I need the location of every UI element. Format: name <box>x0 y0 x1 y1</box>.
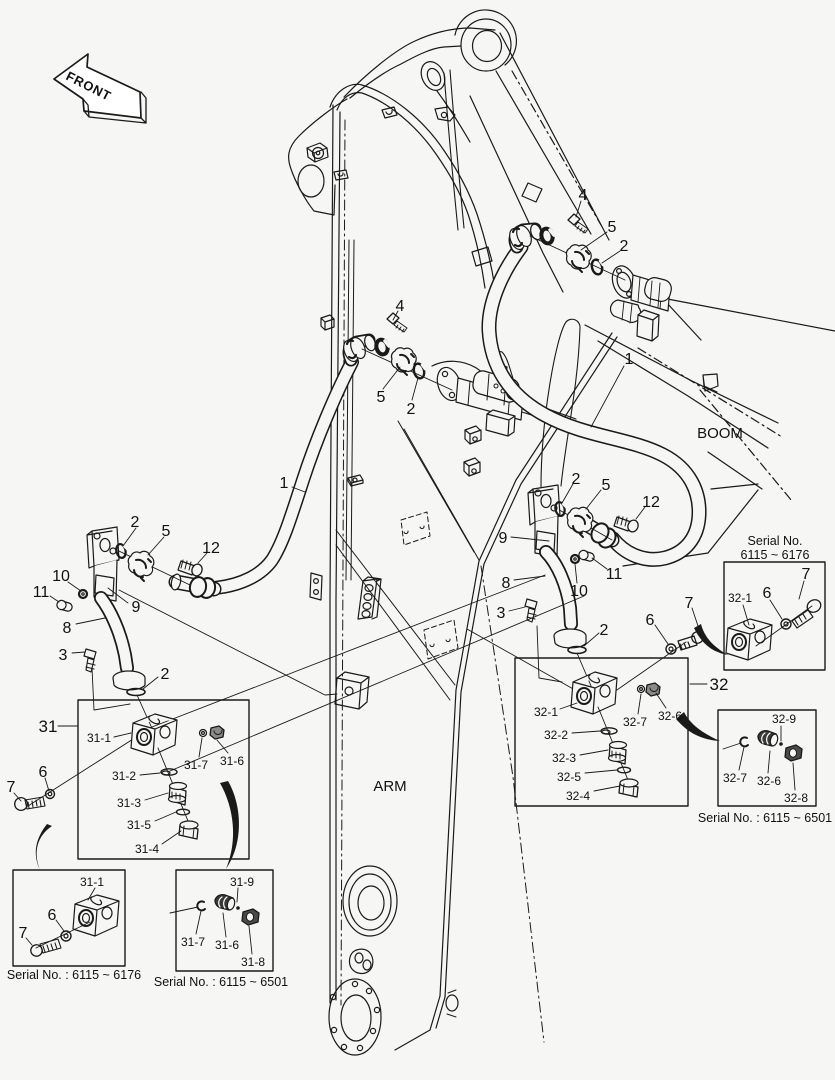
svg-text:31: 31 <box>39 717 58 736</box>
svg-text:32-3: 32-3 <box>552 751 576 765</box>
svg-text:7: 7 <box>19 925 28 942</box>
svg-text:4: 4 <box>579 187 588 204</box>
svg-text:6: 6 <box>763 585 772 602</box>
svg-text:2: 2 <box>131 514 140 531</box>
svg-text:9: 9 <box>499 530 508 547</box>
svg-text:1: 1 <box>280 475 289 492</box>
svg-text:5: 5 <box>608 219 617 236</box>
svg-text:5: 5 <box>377 389 386 406</box>
svg-text:31-6: 31-6 <box>215 938 239 952</box>
svg-text:32-6: 32-6 <box>658 709 682 723</box>
svg-text:32: 32 <box>710 675 729 694</box>
svg-text:Serial No. : 6115 ~ 6176: Serial No. : 6115 ~ 6176 <box>7 968 141 982</box>
svg-text:7: 7 <box>7 779 16 796</box>
svg-text:4: 4 <box>396 298 405 315</box>
svg-text:32-7: 32-7 <box>723 771 747 785</box>
svg-text:Serial No. : 6115 ~ 6501: Serial No. : 6115 ~ 6501 <box>154 975 288 989</box>
svg-text:6: 6 <box>39 764 48 781</box>
svg-text:ARM: ARM <box>373 778 406 795</box>
svg-text:6: 6 <box>646 612 655 629</box>
svg-text:2: 2 <box>407 401 416 418</box>
svg-text:7: 7 <box>685 595 694 612</box>
svg-text:1: 1 <box>625 351 634 368</box>
svg-text:2: 2 <box>600 622 609 639</box>
svg-text:5: 5 <box>602 477 611 494</box>
svg-text:31-5: 31-5 <box>127 818 151 832</box>
svg-text:3: 3 <box>497 605 506 622</box>
svg-text:32-2: 32-2 <box>544 728 568 742</box>
svg-text:6115 ~ 6176: 6115 ~ 6176 <box>741 548 810 562</box>
svg-text:Serial No. : 6115 ~ 6501: Serial No. : 6115 ~ 6501 <box>698 811 832 825</box>
svg-text:6: 6 <box>48 907 57 924</box>
svg-text:8: 8 <box>63 620 72 637</box>
svg-text:2: 2 <box>161 666 170 683</box>
svg-text:31-3: 31-3 <box>117 796 141 810</box>
svg-text:3: 3 <box>59 647 68 664</box>
svg-text:12: 12 <box>642 494 660 511</box>
svg-text:32-6: 32-6 <box>757 774 781 788</box>
svg-text:31-1: 31-1 <box>87 731 111 745</box>
svg-text:10: 10 <box>52 568 70 585</box>
svg-text:31-9: 31-9 <box>230 875 254 889</box>
svg-text:2: 2 <box>572 471 581 488</box>
svg-text:32-5: 32-5 <box>557 770 581 784</box>
svg-text:31-6: 31-6 <box>220 754 244 768</box>
svg-text:BOOM: BOOM <box>697 425 743 442</box>
svg-text:9: 9 <box>132 599 141 616</box>
svg-text:2: 2 <box>620 238 629 255</box>
svg-text:7: 7 <box>802 566 811 583</box>
svg-text:31-7: 31-7 <box>184 758 208 772</box>
svg-text:10: 10 <box>570 583 588 600</box>
svg-text:31-1: 31-1 <box>80 875 104 889</box>
svg-text:32-7: 32-7 <box>623 715 647 729</box>
svg-text:31-4: 31-4 <box>135 842 159 856</box>
svg-text:31-2: 31-2 <box>112 769 136 783</box>
svg-text:32-4: 32-4 <box>566 789 590 803</box>
svg-text:32-8: 32-8 <box>784 791 808 805</box>
svg-text:31-8: 31-8 <box>241 955 265 969</box>
svg-text:11: 11 <box>33 584 50 601</box>
svg-text:32-1: 32-1 <box>728 591 752 605</box>
svg-text:Serial No.: Serial No. <box>748 534 803 548</box>
svg-text:12: 12 <box>202 540 220 557</box>
svg-text:11: 11 <box>606 566 623 583</box>
svg-text:32-9: 32-9 <box>772 712 796 726</box>
svg-text:5: 5 <box>162 523 171 540</box>
svg-text:31-7: 31-7 <box>181 935 205 949</box>
svg-text:32-1: 32-1 <box>534 705 558 719</box>
svg-text:8: 8 <box>502 575 511 592</box>
